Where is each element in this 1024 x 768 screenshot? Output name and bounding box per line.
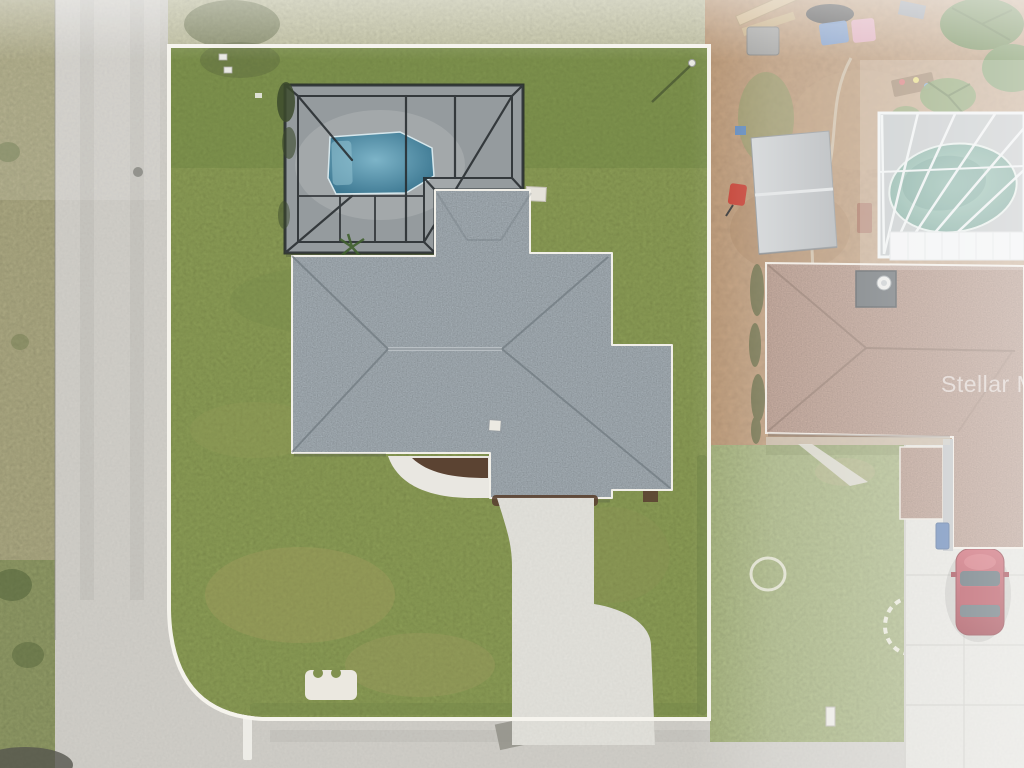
utility-marker <box>255 93 262 98</box>
concrete-pad <box>305 670 357 700</box>
pad-scallop <box>313 668 323 678</box>
lawn-dry-patch <box>205 547 395 643</box>
roof-vent <box>489 420 502 432</box>
sun-haze-pool <box>860 60 1024 270</box>
shoulder-bush <box>11 334 29 350</box>
sun-haze-topleft <box>0 0 160 200</box>
pad-scallop <box>331 668 341 678</box>
utility-marker <box>224 67 232 73</box>
mulch-strip <box>643 491 658 502</box>
aerial-photo: Stellar MLS <box>0 0 1024 768</box>
aerial-photo-canvas <box>0 0 1024 768</box>
watermark-text: Stellar MLS <box>941 371 1024 398</box>
culvert-pad <box>305 668 357 700</box>
shoulder-shrub <box>12 642 44 668</box>
lawn-dry-patch <box>345 633 495 697</box>
